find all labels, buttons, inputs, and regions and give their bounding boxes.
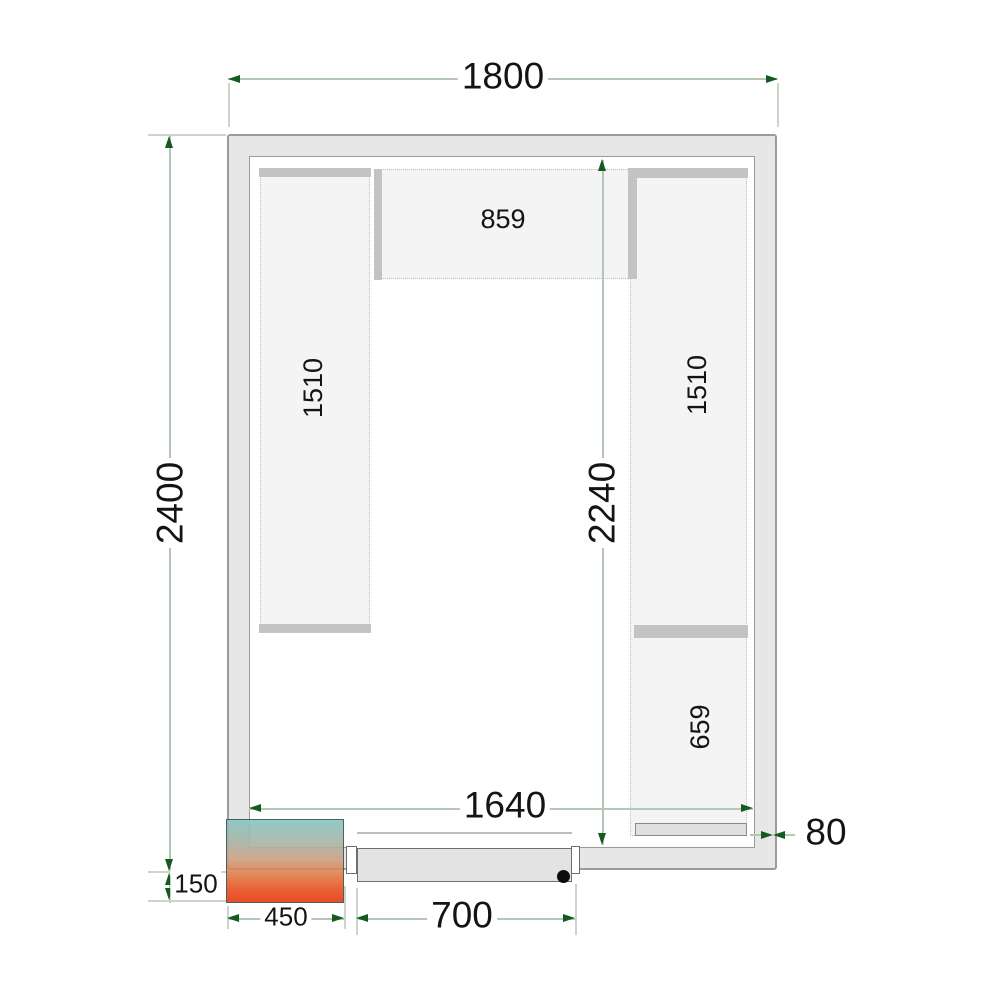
- dim-450-ext-right: [344, 886, 346, 929]
- dim-450-arrow-right: [332, 914, 344, 922]
- dim-1640-arrow-left: [249, 804, 261, 812]
- shelf-left-bottom-bar: [259, 624, 371, 633]
- shelf-left-top-bar: [259, 168, 371, 177]
- door-jamb-right: [571, 846, 580, 874]
- dim-450-label: 450: [260, 903, 311, 930]
- dim-1800-ext-right: [777, 83, 779, 127]
- door-opening-line: [357, 832, 572, 834]
- door-jamb-left: [346, 846, 357, 874]
- dim-2400-ext-top: [148, 134, 226, 136]
- dim-700-arrow-left: [356, 914, 368, 922]
- shelf-right-left-bar: [628, 168, 637, 279]
- dim-80-arrow-left: [761, 831, 773, 839]
- dim-150-label: 150: [170, 870, 221, 897]
- dim-1640-arrow-right: [741, 804, 753, 812]
- dim-2240-arrow-top: [598, 159, 606, 171]
- door-knob-dot: [557, 870, 570, 883]
- dim-2400-arrow-top: [165, 136, 173, 148]
- dim-1800-label: 1800: [458, 58, 548, 97]
- dim-1640-label: 1640: [460, 787, 550, 826]
- dim-2400-arrow-bottom: [165, 859, 173, 871]
- shelf-left-label: 1510: [299, 354, 327, 422]
- dim-700-ext-right: [575, 884, 577, 935]
- dim-1800-arrow-right: [766, 75, 778, 83]
- dim-80-label: 80: [801, 814, 850, 853]
- shelf-top-middle-left-bar: [374, 169, 382, 280]
- dim-2240-arrow-bottom: [598, 833, 606, 845]
- dim-150-ext-bottom: [148, 900, 226, 902]
- dim-700-arrow-right: [563, 914, 575, 922]
- dim-700-ext-left: [356, 888, 358, 935]
- door-leaf: [357, 848, 572, 882]
- dim-1800-arrow-left: [228, 75, 240, 83]
- shelf-right-top-bar: [628, 168, 748, 178]
- dim-2240-label: 2240: [584, 458, 623, 548]
- shelf-right-bottom-bar: [635, 823, 747, 836]
- dim-2400-label: 2400: [152, 458, 191, 548]
- shelf-right-label: 1510: [683, 351, 711, 419]
- dim-1800-ext-left: [228, 83, 230, 127]
- dim-700-label: 700: [427, 897, 497, 936]
- cooling-unit: [226, 819, 344, 903]
- shelf-right-lower-label: 659: [686, 700, 714, 753]
- shelf-right-middle-bar: [634, 625, 748, 638]
- dim-450-arrow-left: [227, 914, 239, 922]
- shelf-top-middle-label: 859: [476, 205, 529, 233]
- floor-plan-canvas: 1800 2400 2240 1640 859 1510 1510 659 45…: [0, 0, 1000, 1000]
- dim-80-arrow-right: [773, 831, 785, 839]
